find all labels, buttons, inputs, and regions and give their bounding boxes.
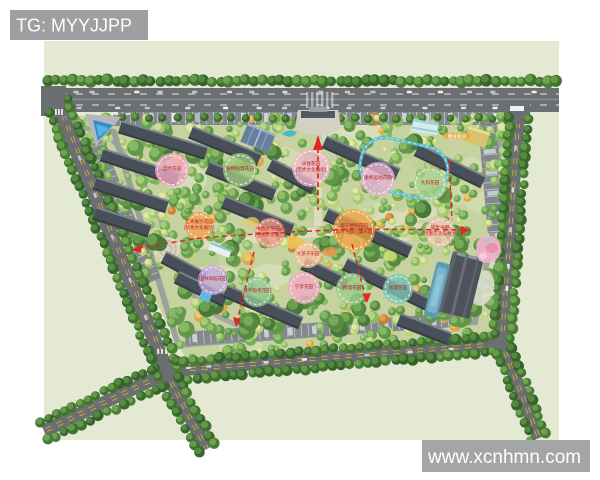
svg-text:数学思考花园: 数学思考花园: [243, 287, 271, 294]
svg-text:自然花园: 自然花园: [163, 165, 182, 172]
svg-text:植物科普花园: 植物科普花园: [226, 165, 254, 172]
svg-text:大孩子乐园: 大孩子乐园: [297, 250, 320, 257]
svg-text:地理花园: 地理花园: [389, 284, 408, 291]
svg-text:(艺术文化展示): (艺术文化展示): [296, 166, 327, 173]
svg-text:物理花园: 物理花园: [343, 284, 362, 291]
svg-text:宁享花园: 宁享花园: [295, 283, 314, 290]
svg-text:康养运动花园: 康养运动花园: [364, 174, 392, 181]
svg-text:(艺术文化展示): (艺术文化展示): [184, 224, 215, 231]
svg-text:健身跑道: 健身跑道: [448, 133, 467, 140]
svg-text:九和花园: 九和花园: [421, 179, 440, 186]
svg-text:TG: MYYJJPP: TG: MYYJJPP: [16, 16, 132, 36]
svg-text:www.xcnhmn.com: www.xcnhmn.com: [427, 447, 581, 468]
svg-text:图书阅稻花园: 图书阅稻花园: [199, 275, 227, 282]
svg-text:(创意交流与共享): (创意交流与共享): [422, 230, 458, 237]
